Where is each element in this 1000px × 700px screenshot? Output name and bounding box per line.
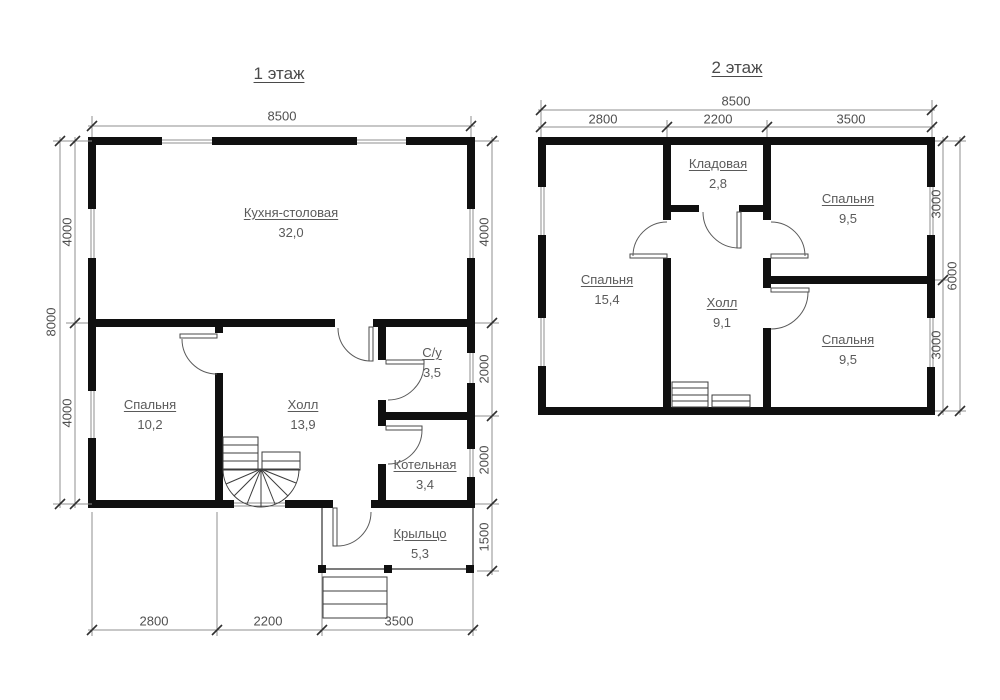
dim-f1-right-mid-lower: 2000 bbox=[477, 446, 492, 475]
staircase bbox=[672, 382, 750, 407]
window bbox=[467, 353, 475, 383]
room-name: Холл bbox=[707, 293, 738, 313]
window bbox=[88, 209, 96, 258]
room-name: Спальня bbox=[581, 270, 633, 290]
room-name: Спальня bbox=[124, 395, 176, 415]
door-swing bbox=[335, 319, 373, 361]
dim-f1-right-top: 4000 bbox=[477, 218, 492, 247]
floor2-dimension-lines bbox=[538, 100, 966, 415]
dim-f2-top-left: 2800 bbox=[589, 112, 618, 127]
dim-f1-bottom-left: 2800 bbox=[140, 614, 169, 629]
room-name: Котельная bbox=[394, 455, 457, 475]
window bbox=[538, 318, 546, 366]
dim-f2-right-top: 3000 bbox=[929, 190, 944, 219]
dim-f1-left-top: 4000 bbox=[60, 218, 75, 247]
window bbox=[467, 209, 475, 258]
door-swing bbox=[333, 500, 371, 546]
door-swing bbox=[378, 360, 424, 400]
room-area: 15,4 bbox=[581, 290, 633, 310]
window bbox=[357, 137, 406, 145]
room-area: 3,5 bbox=[422, 363, 442, 383]
dim-f2-top-center: 2200 bbox=[704, 112, 733, 127]
room-name: Крыльцо bbox=[393, 524, 446, 544]
door-swing bbox=[699, 205, 741, 248]
room-area: 9,1 bbox=[707, 313, 738, 333]
dim-f2-right-bottom: 3000 bbox=[929, 331, 944, 360]
dim-f1-top: 8500 bbox=[268, 109, 297, 124]
entrance-steps bbox=[323, 577, 387, 618]
room-area: 3,4 bbox=[394, 475, 457, 495]
room-label-hall-f1: Холл 13,9 bbox=[288, 395, 319, 435]
dim-f2-top-right: 3500 bbox=[837, 112, 866, 127]
floor2-plan bbox=[536, 100, 966, 416]
window bbox=[88, 391, 96, 438]
window bbox=[467, 449, 475, 477]
window bbox=[538, 187, 546, 235]
room-label-hall-f2: Холл 9,1 bbox=[707, 293, 738, 333]
room-name: Спальня bbox=[822, 189, 874, 209]
room-label-bedroom-bottom-right: Спальня 9,5 bbox=[822, 330, 874, 370]
floorplan-canvas: 1 этаж 2 этаж Кухня-столовая 32,0 Спальн… bbox=[0, 0, 1000, 700]
room-name: Спальня bbox=[822, 330, 874, 350]
room-area: 13,9 bbox=[288, 415, 319, 435]
room-area: 10,2 bbox=[124, 415, 176, 435]
room-name: Кухня-столовая bbox=[244, 203, 338, 223]
room-label-boiler: Котельная 3,4 bbox=[394, 455, 457, 495]
room-label-bedroom-top-right: Спальня 9,5 bbox=[822, 189, 874, 229]
room-name: С/у bbox=[422, 343, 442, 363]
room-area: 32,0 bbox=[244, 223, 338, 243]
room-area: 5,3 bbox=[393, 544, 446, 564]
door-swing bbox=[180, 333, 223, 374]
dim-f1-left-total: 8000 bbox=[44, 308, 59, 337]
dim-f1-left-bottom: 4000 bbox=[60, 399, 75, 428]
room-name: Холл bbox=[288, 395, 319, 415]
room-label-storage: Кладовая 2,8 bbox=[689, 154, 747, 194]
floor2-dimension-ticks bbox=[536, 105, 965, 416]
window bbox=[162, 137, 212, 145]
staircase bbox=[223, 437, 300, 507]
dim-f1-right-mid-upper: 2000 bbox=[477, 355, 492, 384]
floor2-title: 2 этаж bbox=[712, 58, 763, 78]
door-swing bbox=[763, 220, 808, 258]
room-area: 9,5 bbox=[822, 209, 874, 229]
dim-f1-right-porch: 1500 bbox=[477, 523, 492, 552]
dim-f1-bottom-right: 3500 bbox=[385, 614, 414, 629]
room-area: 2,8 bbox=[689, 174, 747, 194]
room-label-bedroom-f1: Спальня 10,2 bbox=[124, 395, 176, 435]
dim-f1-bottom-center: 2200 bbox=[254, 614, 283, 629]
room-label-bedroom-left-f2: Спальня 15,4 bbox=[581, 270, 633, 310]
door-swing bbox=[763, 288, 809, 329]
floor1-title: 1 этаж bbox=[254, 64, 305, 84]
door-swing bbox=[630, 220, 671, 258]
dim-f2-right-total: 6000 bbox=[945, 262, 960, 291]
room-name: Кладовая bbox=[689, 154, 747, 174]
room-label-porch: Крыльцо 5,3 bbox=[393, 524, 446, 564]
room-area: 9,5 bbox=[822, 350, 874, 370]
dim-f2-top-total: 8500 bbox=[722, 94, 751, 109]
room-label-kitchen: Кухня-столовая 32,0 bbox=[244, 203, 338, 243]
room-label-wc: С/у 3,5 bbox=[422, 343, 442, 383]
